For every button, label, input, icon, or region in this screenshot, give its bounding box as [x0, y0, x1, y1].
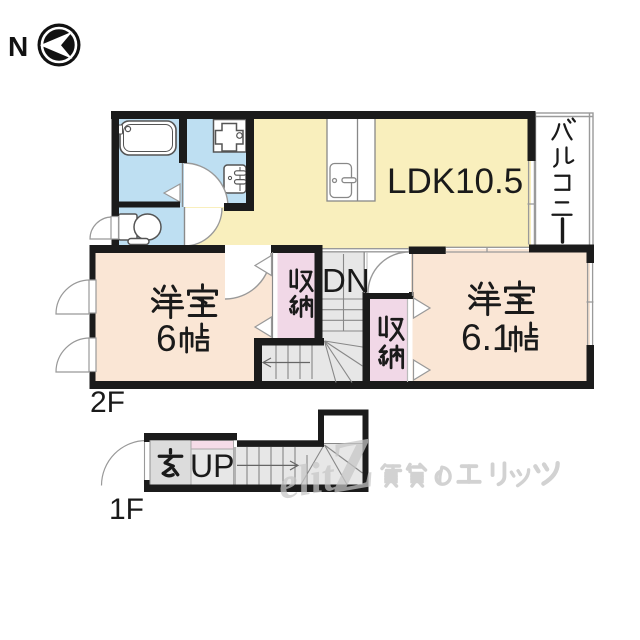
- svg-text:UP: UP: [190, 448, 234, 484]
- svg-text:LDK10.5: LDK10.5: [387, 162, 523, 201]
- svg-text:1F: 1F: [109, 493, 144, 526]
- svg-text:DN: DN: [322, 262, 370, 299]
- svg-text:6.1: 6.1: [461, 317, 512, 358]
- svg-text:6: 6: [156, 318, 177, 359]
- svg-text:N: N: [8, 31, 28, 62]
- svg-text:2F: 2F: [90, 386, 125, 419]
